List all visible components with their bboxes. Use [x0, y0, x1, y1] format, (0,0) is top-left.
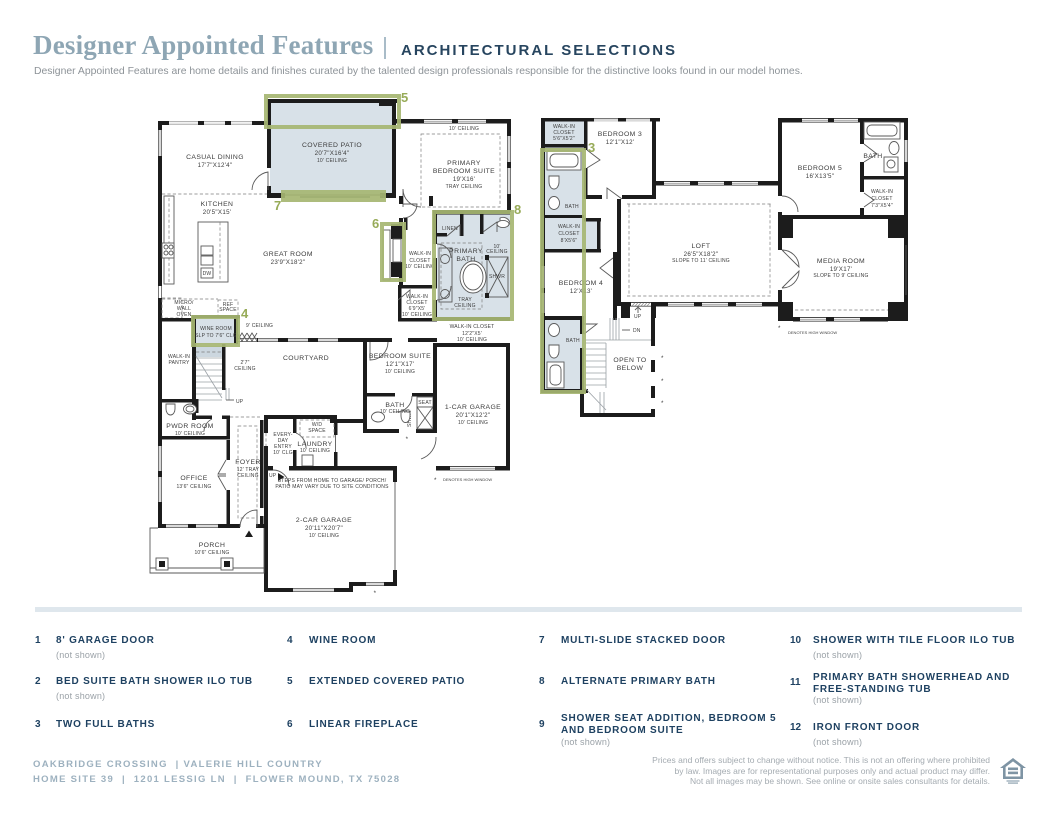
svg-text:PWDR ROOM: PWDR ROOM [166, 423, 213, 430]
svg-text:*: * [661, 378, 664, 385]
svg-text:10' CEILING: 10' CEILING [317, 158, 347, 164]
svg-text:19'X17': 19'X17' [830, 266, 852, 273]
svg-text:10' CEILING: 10' CEILING [175, 431, 205, 437]
svg-text:10' CEILING: 10' CEILING [385, 369, 415, 375]
svg-text:*: * [374, 590, 377, 597]
svg-text:TRAY CEILING: TRAY CEILING [446, 184, 483, 190]
svg-text:10' CEILING: 10' CEILING [402, 312, 432, 318]
svg-text:WALK-IN: WALK-IN [558, 224, 580, 230]
svg-text:16'X13'5": 16'X13'5" [806, 173, 835, 180]
svg-text:SLOPE TO 11' CEILING: SLOPE TO 11' CEILING [672, 258, 730, 264]
svg-text:2-CAR GARAGE: 2-CAR GARAGE [296, 517, 352, 524]
svg-text:SLOPE TO 9' CEILING: SLOPE TO 9' CEILING [813, 273, 868, 279]
svg-text:WALK-IN: WALK-IN [409, 251, 431, 257]
svg-text:DW: DW [203, 271, 212, 277]
svg-text:12'1"X17': 12'1"X17' [386, 361, 415, 368]
svg-text:6: 6 [372, 216, 379, 231]
svg-text:BATH: BATH [566, 338, 580, 344]
svg-text:BELOW: BELOW [617, 365, 644, 372]
svg-text:FOYER: FOYER [235, 459, 260, 466]
svg-text:PANTRY: PANTRY [168, 360, 189, 366]
svg-text:CEILING: CEILING [237, 473, 258, 479]
svg-text:10' CEILING: 10' CEILING [457, 337, 487, 343]
svg-text:BATH: BATH [565, 204, 579, 210]
svg-text:5: 5 [401, 90, 408, 105]
svg-text:10'6" CEILING: 10'6" CEILING [194, 550, 229, 556]
svg-text:KITCHEN: KITCHEN [201, 201, 234, 208]
svg-text:9' CEILING: 9' CEILING [246, 323, 273, 329]
svg-text:COVERED PATIO: COVERED PATIO [302, 142, 362, 149]
svg-text:10' CEILING: 10' CEILING [309, 533, 339, 539]
svg-text:13'6" CEILING: 13'6" CEILING [176, 484, 211, 490]
svg-text:*: * [434, 477, 437, 484]
svg-text:DENOTES HIGH WINDOW: DENOTES HIGH WINDOW [788, 330, 837, 335]
svg-text:WALK-IN CLOSET: WALK-IN CLOSET [450, 324, 495, 330]
svg-text:CLOSET: CLOSET [558, 231, 579, 237]
svg-text:DN: DN [633, 328, 641, 334]
svg-text:7: 7 [274, 198, 281, 213]
svg-text:BATH: BATH [456, 256, 475, 263]
svg-text:WINE ROOM: WINE ROOM [200, 326, 232, 332]
svg-text:20'7"X16'4": 20'7"X16'4" [315, 150, 350, 157]
svg-text:BEDROOM SUITE: BEDROOM SUITE [433, 168, 495, 175]
svg-text:PATIO MAY VARY DUE TO SITE CON: PATIO MAY VARY DUE TO SITE CONDITIONS [275, 484, 389, 490]
svg-text:3: 3 [588, 140, 595, 155]
svg-text:17'7"X12'4": 17'7"X12'4" [198, 162, 233, 169]
svg-text:26'5"X18'2": 26'5"X18'2" [684, 251, 719, 258]
svg-text:8: 8 [514, 202, 521, 217]
svg-text:BATH: BATH [863, 153, 882, 160]
svg-text:*: * [406, 436, 409, 443]
svg-text:WALK-IN: WALK-IN [871, 189, 893, 195]
svg-text:UP: UP [269, 473, 277, 479]
svg-text:BATH: BATH [385, 402, 404, 409]
svg-text:LAUNDRY: LAUNDRY [297, 441, 332, 448]
svg-text:BEDROOM 4: BEDROOM 4 [559, 280, 603, 287]
svg-text:20'11"X20'7": 20'11"X20'7" [305, 525, 343, 532]
svg-text:CEILING: CEILING [486, 249, 507, 255]
svg-text:12'1"X12': 12'1"X12' [606, 139, 635, 146]
svg-text:OFFICE: OFFICE [180, 475, 207, 482]
svg-text:DENOTES HIGH WINDOW: DENOTES HIGH WINDOW [443, 477, 492, 482]
svg-text:LINEN: LINEN [442, 226, 458, 232]
svg-text:BEDROOM 5: BEDROOM 5 [798, 165, 842, 172]
svg-text:10' CEILING: 10' CEILING [380, 409, 410, 415]
svg-text:OPEN TO: OPEN TO [613, 357, 646, 364]
svg-text:PRIMARY: PRIMARY [449, 248, 483, 255]
svg-text:CASUAL DINING: CASUAL DINING [186, 154, 244, 161]
svg-text:*: * [661, 400, 664, 407]
svg-text:SLP TO 7'6" CLG: SLP TO 7'6" CLG [195, 333, 237, 339]
svg-text:OVEN: OVEN [177, 312, 192, 318]
svg-text:SEAT: SEAT [418, 400, 432, 406]
svg-text:CLOSET: CLOSET [871, 196, 892, 202]
svg-text:10' CEILING: 10' CEILING [300, 448, 330, 454]
svg-text:COURTYARD: COURTYARD [283, 355, 329, 362]
svg-text:20'5"X15': 20'5"X15' [203, 209, 232, 216]
svg-text:19'X16': 19'X16' [453, 176, 475, 183]
svg-text:20'1"X12'2": 20'1"X12'2" [456, 412, 491, 419]
svg-text:SPACE: SPACE [219, 307, 237, 313]
svg-text:23'9"X18'2": 23'9"X18'2" [271, 259, 306, 266]
svg-text:8'X5'6": 8'X5'6" [561, 238, 578, 244]
svg-text:SHWR: SHWR [489, 274, 505, 280]
svg-text:*: * [661, 355, 664, 362]
svg-text:GREAT ROOM: GREAT ROOM [263, 251, 313, 258]
svg-text:UP: UP [634, 314, 642, 320]
svg-text:LOFT: LOFT [692, 243, 711, 250]
svg-text:PORCH: PORCH [199, 542, 226, 549]
svg-text:PRIMARY: PRIMARY [447, 160, 481, 167]
svg-text:7'3"X5'4": 7'3"X5'4" [871, 203, 893, 209]
svg-text:4: 4 [241, 306, 249, 321]
svg-text:12'X13': 12'X13' [570, 288, 592, 295]
svg-text:CEILING: CEILING [234, 366, 255, 372]
svg-text:10' CEILING: 10' CEILING [405, 264, 435, 270]
svg-text:1-CAR GARAGE: 1-CAR GARAGE [445, 404, 501, 411]
svg-text:UP: UP [236, 399, 244, 405]
svg-text:5'6"X5'2": 5'6"X5'2" [553, 136, 575, 142]
svg-text:BEDROOM 3: BEDROOM 3 [598, 131, 642, 138]
svg-text:10' CEILING: 10' CEILING [458, 420, 488, 426]
svg-text:BEDROOM SUITE: BEDROOM SUITE [369, 353, 431, 360]
svg-text:10' CEILING: 10' CEILING [449, 126, 479, 132]
svg-text:10' CLG: 10' CLG [273, 450, 293, 456]
svg-text:CEILING: CEILING [454, 303, 475, 309]
svg-text:MEDIA ROOM: MEDIA ROOM [817, 258, 865, 265]
svg-text:SPACE: SPACE [308, 428, 326, 434]
svg-text:*: * [778, 325, 781, 332]
